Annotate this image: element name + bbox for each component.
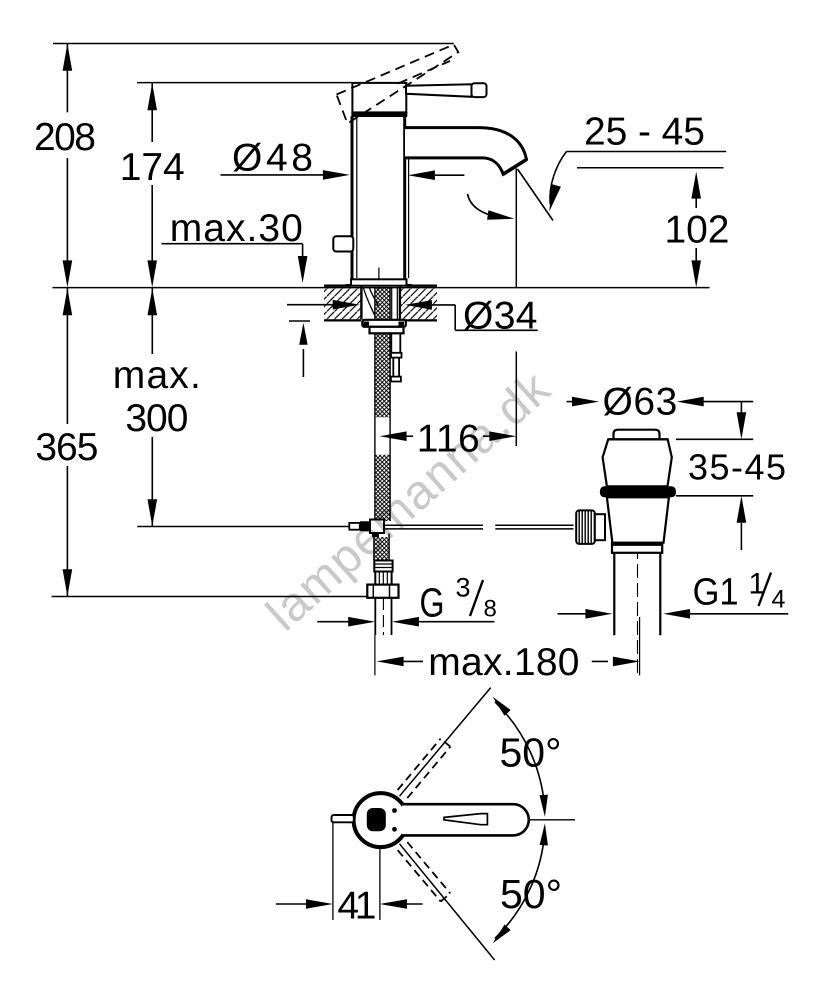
svg-text:35-45: 35-45 <box>688 446 786 487</box>
svg-text:3: 3 <box>456 573 471 603</box>
svg-text:174: 174 <box>120 146 185 189</box>
svg-text:25 - 45: 25 - 45 <box>584 111 705 154</box>
svg-text:Ø48: Ø48 <box>232 136 313 179</box>
svg-text:50°: 50° <box>500 730 562 776</box>
svg-text:G1: G1 <box>693 572 739 614</box>
svg-text:4: 4 <box>772 585 786 613</box>
svg-text:365: 365 <box>35 426 98 469</box>
svg-text:Ø63: Ø63 <box>603 381 678 424</box>
svg-text:41: 41 <box>337 884 376 927</box>
svg-text:50°: 50° <box>500 871 562 917</box>
svg-text:300: 300 <box>125 397 188 440</box>
svg-text:max.180: max.180 <box>428 641 579 684</box>
svg-text:Ø34: Ø34 <box>463 294 538 337</box>
svg-text:102: 102 <box>665 209 730 252</box>
svg-text:208: 208 <box>34 116 96 159</box>
svg-text:G: G <box>420 580 445 626</box>
svg-text:8: 8 <box>484 596 497 623</box>
svg-text:max.: max. <box>113 354 201 397</box>
